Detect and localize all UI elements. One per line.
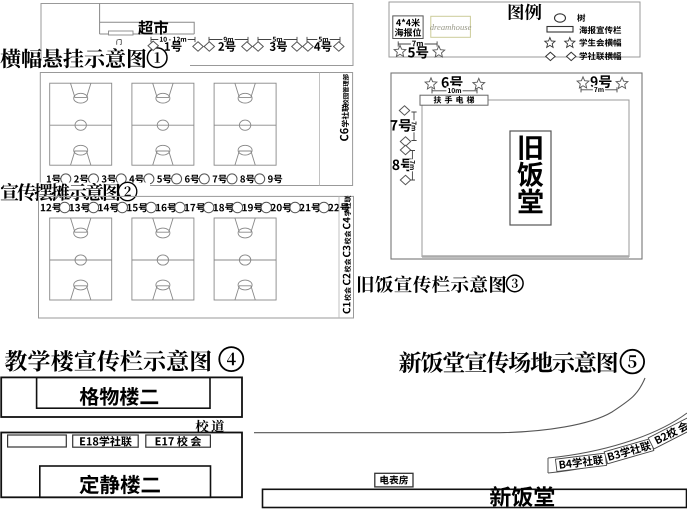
svg-text:dreamhouse: dreamhouse	[430, 22, 472, 32]
